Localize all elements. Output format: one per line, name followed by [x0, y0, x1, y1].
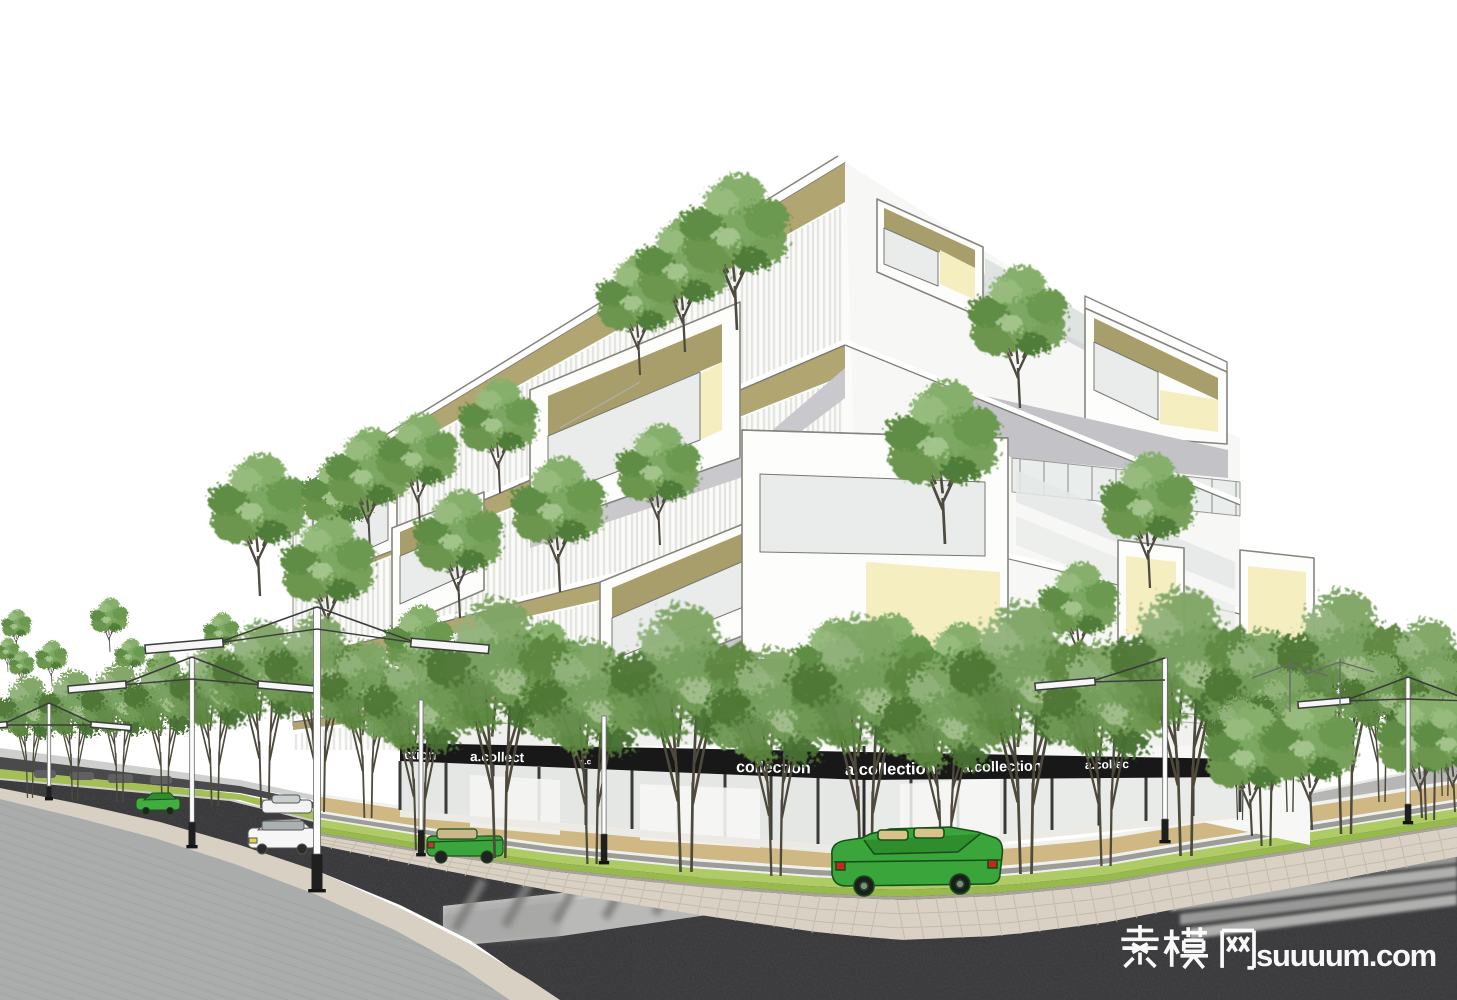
svg-text:suuuum.com: suuuum.com — [1256, 938, 1436, 973]
svg-text:a.collect: a.collect — [470, 749, 525, 765]
